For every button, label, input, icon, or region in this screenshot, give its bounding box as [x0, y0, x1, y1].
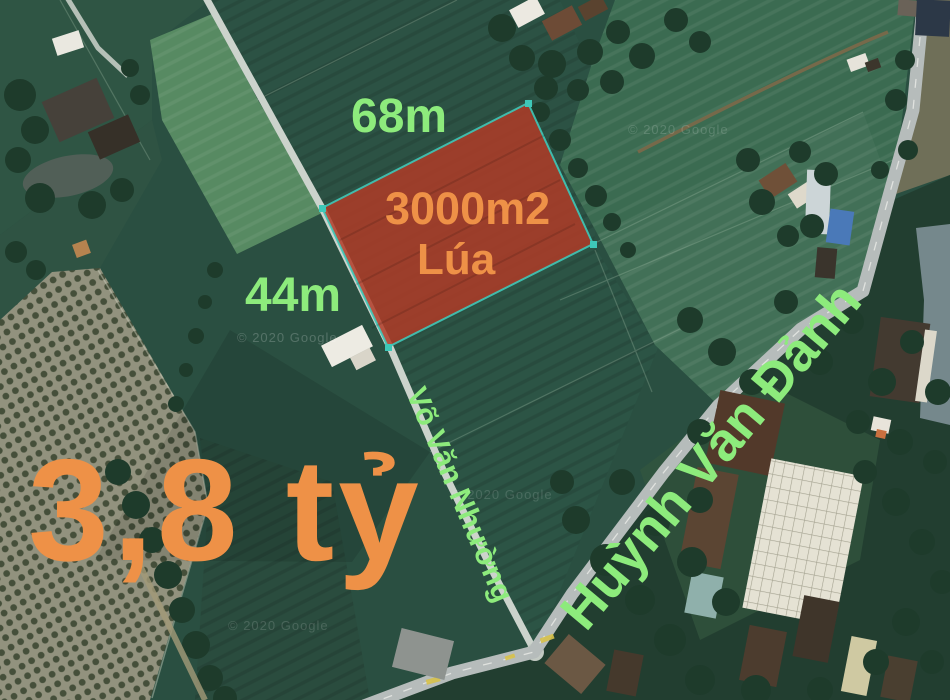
- google-watermark: © 2020 Google: [228, 618, 329, 633]
- plot-left-edge-length-label: 44m: [245, 272, 341, 320]
- plot-area-label: 3000m2: [385, 186, 550, 231]
- google-watermark: © 2020 Google: [452, 487, 553, 502]
- satellite-map-image: 68m 3000m2 Lúa 44m 3,8 tỷ Võ Văn Nhường …: [0, 0, 950, 700]
- price-label: 3,8 tỷ: [28, 438, 423, 583]
- plot-crop-label: Lúa: [417, 238, 495, 282]
- google-watermark: © 2020 Google: [628, 122, 729, 137]
- google-watermark: © 2020 Google: [237, 330, 338, 345]
- plot-top-edge-length-label: 68m: [351, 93, 447, 141]
